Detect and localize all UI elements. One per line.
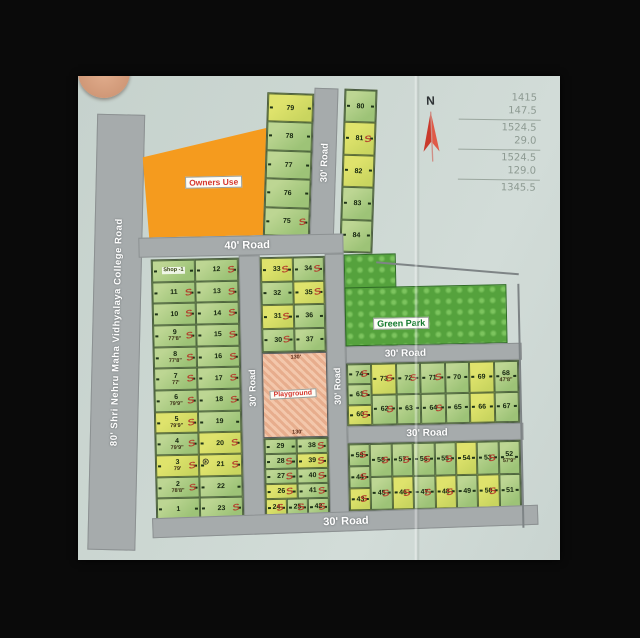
plot-cell: 54 — [456, 442, 478, 475]
plot-cell: 11S — [152, 281, 195, 304]
plot-number: 31 — [274, 313, 282, 320]
sold-mark: S — [434, 402, 444, 413]
plot-number: 28 — [277, 458, 285, 465]
sold-mark: S — [317, 484, 327, 495]
sold-mark: S — [281, 263, 291, 274]
sold-mark: S — [423, 453, 433, 464]
plot-cell: 69 — [469, 361, 494, 392]
plot-number: 81 — [355, 135, 363, 142]
plot-number: 69 — [478, 373, 486, 380]
plot-number: 34 — [304, 265, 312, 272]
calc-line: 1524.5 — [459, 121, 537, 135]
sold-mark: S — [282, 334, 292, 345]
sold-mark: S — [230, 437, 240, 448]
plot-cell: 37 — [294, 327, 326, 351]
plot-number: 40 — [309, 472, 317, 479]
sold-mark: S — [184, 308, 194, 319]
plot-cell: 67 — [494, 391, 519, 422]
plot-dimension: 57'9" — [503, 458, 516, 464]
sold-mark: S — [227, 285, 237, 296]
plot-cell: 29 — [265, 439, 297, 455]
plot-block-top-west: 7978777675S — [263, 92, 314, 237]
plot-number: 66 — [478, 404, 486, 411]
plot-number: 65 — [454, 404, 462, 411]
calc-group: 1524.5129.0 — [458, 149, 540, 180]
calc-group: 1524.529.0 — [458, 119, 540, 150]
plot-cell: 28S — [265, 454, 297, 470]
plot-cell: 32 — [261, 281, 293, 305]
plot-cell: 679'9"S — [154, 390, 197, 413]
sold-mark: S — [230, 458, 240, 469]
plot-number: 82 — [354, 168, 362, 175]
sold-mark: S — [187, 438, 197, 449]
sold-mark: S — [185, 351, 195, 362]
sold-mark: S — [184, 286, 194, 297]
plot-block-right-lower: 59S44S43S58S45S57S46S56S47S55S48S544953S… — [348, 440, 522, 512]
college-road: 80' Shri Nehru Maha Vidhyalaya College R… — [87, 114, 145, 551]
plot-number: 33 — [273, 266, 281, 273]
calc-line: 1524.5 — [458, 151, 536, 165]
owners-use-label: Owners Use — [185, 176, 242, 189]
calc-group: 1345.5 — [458, 179, 540, 197]
plot-cell: 43S — [350, 488, 372, 510]
plot-cell: 40S — [297, 468, 329, 484]
road-30-label: 30' Road — [406, 427, 448, 439]
well-icon: ⊛ — [202, 457, 210, 466]
plot-cell: 21S⊛ — [199, 454, 242, 477]
plot-number: 20 — [216, 440, 224, 447]
plot-cell: 81S — [343, 122, 375, 155]
plot-number: 39 — [308, 457, 316, 464]
road-30-label: 30' Road — [332, 368, 343, 405]
sold-mark: S — [186, 416, 196, 427]
plot-dimension: 47'8" — [499, 377, 512, 383]
sold-mark: S — [186, 394, 196, 405]
plot-cell: 18S — [197, 389, 240, 412]
plot-cell: 50S — [478, 474, 500, 507]
sold-mark: S — [445, 486, 455, 497]
plot-number: 36 — [305, 312, 313, 319]
sold-mark: S — [296, 501, 306, 512]
sold-mark: S — [359, 471, 369, 482]
plot-cell: 19 — [198, 410, 241, 433]
road-40: 40' Road — [138, 233, 343, 257]
site-plan-photo: 80' Shri Nehru Maha Vidhyalaya College R… — [78, 76, 560, 560]
plot-number: 23 — [217, 505, 225, 512]
plot-cell: 73S — [371, 363, 396, 394]
plot-cell: 479'9"S — [155, 433, 198, 456]
plot-number: 12 — [212, 266, 220, 273]
college-road-label: 80' Shri Nehru Maha Vidhyalaya College R… — [108, 218, 124, 446]
plot-cell: 48S — [435, 475, 457, 508]
plot-block-right-upper: 74S61S60S73S62S72S6371S64S706569666847'8… — [346, 360, 520, 427]
sold-mark: S — [487, 452, 497, 463]
sold-mark: S — [317, 500, 327, 511]
plot-number: 30 — [274, 337, 282, 344]
plot-number: 11 — [170, 289, 178, 296]
plot-cell: 46S — [392, 476, 414, 509]
sold-mark: S — [316, 469, 326, 480]
plot-cell: 71S — [420, 362, 445, 393]
plot-number: 76 — [284, 190, 292, 197]
sold-mark: S — [185, 373, 195, 384]
plot-number: 51 — [506, 487, 514, 494]
sold-mark: S — [231, 502, 241, 513]
plot-cell: 75S — [264, 207, 310, 237]
sold-mark: S — [188, 481, 198, 492]
plot-number: 37 — [306, 336, 314, 343]
plot-dimension: 77'8" — [169, 358, 182, 364]
sold-mark: S — [363, 133, 372, 144]
plot-number: 22 — [217, 483, 225, 490]
plot-cell: 77 — [266, 150, 312, 180]
road-30-label: 30' Road — [323, 515, 369, 529]
road-40-label: 40' Road — [224, 239, 270, 252]
sold-mark: S — [187, 459, 197, 470]
plot-cell: 977'8"S — [153, 325, 196, 348]
plot-cell: 82 — [342, 154, 374, 187]
plot-cell: 74S — [347, 364, 372, 385]
plot-number: 14 — [213, 310, 221, 317]
road-30-top-vertical: 30' Road — [310, 88, 339, 239]
plot-cell: 45S — [371, 477, 393, 510]
plot-dimension: 79'9" — [171, 445, 184, 451]
plot-cell: 15S — [196, 324, 239, 347]
calc-line: 29.0 — [458, 134, 536, 148]
north-indicator: N — [415, 93, 447, 169]
plot-number: 67 — [503, 403, 511, 410]
sold-mark: S — [185, 329, 195, 340]
sold-mark: S — [227, 307, 237, 318]
plot-cell: 66 — [470, 392, 495, 423]
calc-line: 147.5 — [459, 104, 537, 118]
sold-mark: S — [312, 263, 322, 274]
sold-mark: S — [380, 454, 390, 465]
plot-number: 16 — [214, 353, 222, 360]
plot-cell: 12S — [195, 259, 238, 282]
plot-cell: 777'S — [154, 368, 197, 391]
plot-number: 84 — [352, 232, 360, 239]
plot-cell: 41S — [297, 483, 329, 499]
plot-block-top-east: 8081S828384 — [339, 89, 377, 254]
sold-mark: S — [381, 487, 391, 498]
plot-number: 38 — [308, 442, 316, 449]
plot-cell: 65 — [445, 392, 470, 423]
plot-cell: 14S — [196, 302, 239, 325]
plot-number: Shop -1 — [162, 267, 184, 274]
plot-number: 21 — [217, 461, 225, 468]
top-plot-cluster: 7978777675S 30' Road 8081S828384 — [262, 86, 377, 255]
plot-dimension: 79'9" — [170, 423, 183, 429]
plot-cell: 84 — [340, 219, 372, 252]
plot-number: 79 — [286, 105, 294, 112]
sold-mark: S — [316, 439, 326, 450]
plot-cell: 44S — [349, 466, 371, 488]
playground-dim-bottom: 130' — [292, 429, 303, 435]
plot-number: 35 — [305, 289, 313, 296]
plot-cell: 31S — [262, 305, 294, 329]
playground-dim-top: 130' — [290, 354, 301, 360]
sold-mark: S — [444, 453, 454, 464]
plot-number: 29 — [276, 443, 284, 450]
plot-number: 41 — [309, 487, 317, 494]
sold-mark: S — [228, 372, 238, 383]
plot-cell: 22 — [199, 475, 242, 498]
green-park-label: Green Park — [373, 317, 429, 330]
plot-cell: 34S — [292, 257, 324, 281]
plot-dimension: 77'8" — [168, 336, 181, 342]
paper-crease — [414, 76, 420, 560]
plot-cell: 5257'9" — [498, 441, 520, 474]
plot-number: 1 — [176, 506, 180, 513]
sold-mark: S — [423, 486, 433, 497]
sold-mark: S — [358, 449, 368, 460]
sold-mark: S — [316, 454, 326, 465]
plot-number: 27 — [277, 473, 285, 480]
plot-cell: 10S — [153, 303, 196, 326]
sold-mark: S — [228, 350, 238, 361]
layout-map: 80' Shri Nehru Maha Vidhyalaya College R… — [78, 76, 560, 560]
sold-mark: S — [402, 486, 412, 497]
plot-number: 19 — [216, 418, 224, 425]
plot-block-left: Shop -111S10S977'8"S877'8"S777'S679'9"S5… — [151, 258, 244, 522]
plot-cell: 61S — [347, 384, 372, 405]
plot-cell: 70 — [445, 362, 470, 393]
plot-cell: 76 — [265, 178, 311, 208]
plot-number: 18 — [215, 396, 223, 403]
plot-cell: 30S — [262, 328, 294, 352]
plot-cell: 78 — [267, 122, 313, 152]
plot-cell: 6847'8" — [493, 361, 518, 392]
plot-cell: 49 — [456, 475, 478, 508]
sold-mark: S — [360, 388, 370, 399]
plot-number: 70 — [453, 374, 461, 381]
plot-cell: 60S — [348, 405, 373, 426]
plot-cell: 36 — [293, 304, 325, 328]
plot-cell: 33S — [261, 258, 293, 282]
sold-mark: S — [360, 368, 370, 379]
plot-number: 26 — [277, 488, 285, 495]
sold-mark: S — [359, 493, 369, 504]
sold-mark: S — [298, 216, 307, 227]
green-park-lower — [344, 284, 507, 346]
photo-viewer-background: 80' Shri Nehru Maha Vidhyalaya College R… — [0, 0, 640, 638]
sold-mark: S — [226, 263, 236, 274]
calc-group: 1415147.5 — [459, 90, 541, 120]
sold-mark: S — [401, 453, 411, 464]
plot-cell: 20S — [198, 432, 241, 455]
sold-mark: S — [229, 393, 239, 404]
plot-cell: 278'8"S — [156, 476, 199, 499]
plot-cell: 79 — [267, 93, 313, 123]
plot-number: 83 — [353, 200, 361, 207]
plot-cell: 39S — [296, 453, 328, 469]
plot-number: 63 — [405, 405, 413, 412]
sold-mark: S — [385, 403, 395, 414]
calc-line: 1415 — [459, 91, 537, 105]
sold-mark: S — [228, 328, 238, 339]
plot-cell: 55S — [434, 442, 456, 475]
playground-area: 130' Playground 130' — [262, 352, 329, 438]
plot-cell: 57S — [391, 443, 413, 476]
sold-mark: S — [361, 409, 371, 420]
plot-cell: 26S — [265, 483, 297, 499]
playground-label: Playground — [269, 388, 316, 400]
plot-number: 49 — [463, 488, 471, 495]
sold-mark: S — [433, 372, 443, 383]
plot-cell: 62S — [372, 394, 397, 425]
plot-number: 10 — [170, 311, 178, 318]
plot-cell: 38S — [296, 438, 328, 454]
plot-dimension: 79' — [174, 466, 182, 472]
plot-number: 78 — [285, 133, 293, 140]
plot-cell: 16S — [197, 345, 240, 368]
sold-mark: S — [285, 470, 295, 481]
plot-number: 17 — [215, 375, 223, 382]
sold-mark: S — [285, 455, 295, 466]
sold-mark: S — [285, 485, 295, 496]
plot-cell: 59S — [349, 444, 371, 466]
plot-cell: 58S — [370, 444, 392, 477]
plot-cell: 35S — [293, 280, 325, 304]
plot-number: 32 — [273, 290, 281, 297]
plot-cell: 13S — [195, 280, 238, 303]
plot-cell: 17S — [197, 367, 240, 390]
plot-cell: 579'9"S — [155, 411, 198, 434]
plot-cell: 27S — [265, 469, 297, 485]
plot-dimension: 79'9" — [170, 401, 183, 407]
plot-number: 54 — [463, 455, 471, 462]
plot-cell: 80 — [344, 90, 376, 123]
boundary-line-top-right — [376, 261, 519, 275]
plot-dimension: 77' — [172, 380, 180, 386]
plot-cell: 51 — [499, 474, 521, 507]
plot-block-mid-upper: 33S3231S30S34S35S3637 — [260, 256, 327, 353]
north-arrow-icon — [418, 107, 445, 164]
handwritten-calculations: 1415147.51524.529.01524.5129.01345.5 — [458, 90, 541, 197]
sold-mark: S — [487, 485, 497, 496]
road-30-label: 30' Road — [247, 370, 258, 407]
sold-mark: S — [384, 373, 394, 384]
plot-cell: 379'S — [156, 455, 199, 478]
plot-block-mid-lower: 2928S27S26S38S39S40S41S24S25S42S — [264, 437, 331, 517]
plot-number: 75 — [283, 218, 291, 225]
sold-mark: S — [313, 286, 323, 297]
plot-number: 80 — [356, 103, 364, 110]
plot-number: 77 — [285, 161, 293, 168]
road-30-label: 30' Road — [318, 143, 330, 183]
plot-number: 13 — [213, 288, 221, 295]
plot-cell: Shop -1 — [152, 260, 195, 283]
sold-mark: S — [282, 310, 292, 321]
plot-cell: 53S — [477, 441, 499, 474]
calc-line: 129.0 — [458, 164, 536, 178]
plot-cell: 83 — [341, 187, 373, 220]
plot-cell: 64S — [421, 393, 446, 424]
plot-number: 15 — [214, 331, 222, 338]
calc-line: 1345.5 — [458, 181, 536, 195]
sold-mark: S — [275, 501, 285, 512]
plot-cell: 877'8"S — [154, 346, 197, 369]
plot-dimension: 78'8" — [171, 488, 184, 494]
